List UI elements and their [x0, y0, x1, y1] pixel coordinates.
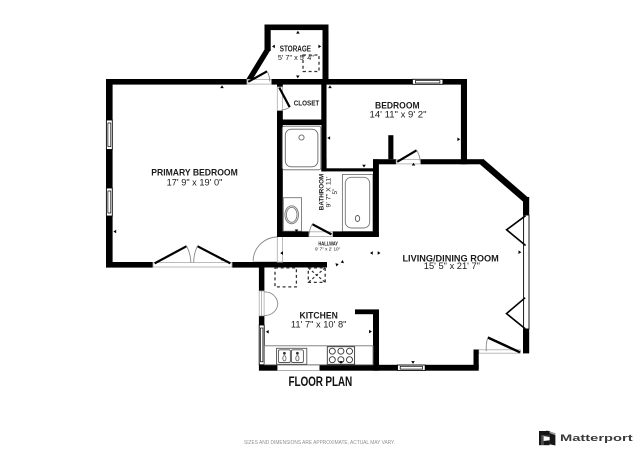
svg-text:FLOOR PLAN: FLOOR PLAN — [289, 374, 353, 389]
svg-text:9' 7" X 11': 9' 7" X 11' — [326, 177, 332, 208]
svg-text:15' 5" x 21' 7": 15' 5" x 21' 7" — [424, 261, 480, 271]
svg-text:14' 11" x 9' 2": 14' 11" x 9' 2" — [370, 109, 427, 119]
svg-text:SIZES AND DIMENSIONS ARE APPRO: SIZES AND DIMENSIONS ARE APPROXIMATE, AC… — [244, 440, 395, 446]
svg-text:CLOSET: CLOSET — [294, 99, 320, 108]
svg-text:PRIMARY BEDROOM: PRIMARY BEDROOM — [151, 167, 238, 177]
svg-text:17' 9" x 19' 0": 17' 9" x 19' 0" — [167, 178, 223, 188]
svg-text:5": 5" — [333, 189, 339, 194]
svg-text:Matterport: Matterport — [560, 433, 633, 443]
svg-text:11' 7" x 10' 8": 11' 7" x 10' 8" — [291, 320, 347, 330]
svg-text:BATHROOM: BATHROOM — [319, 174, 326, 210]
svg-text:9' 7" x 2' 10": 9' 7" x 2' 10" — [315, 246, 341, 252]
svg-text:5' 7" x 5' 4": 5' 7" x 5' 4" — [278, 53, 314, 62]
